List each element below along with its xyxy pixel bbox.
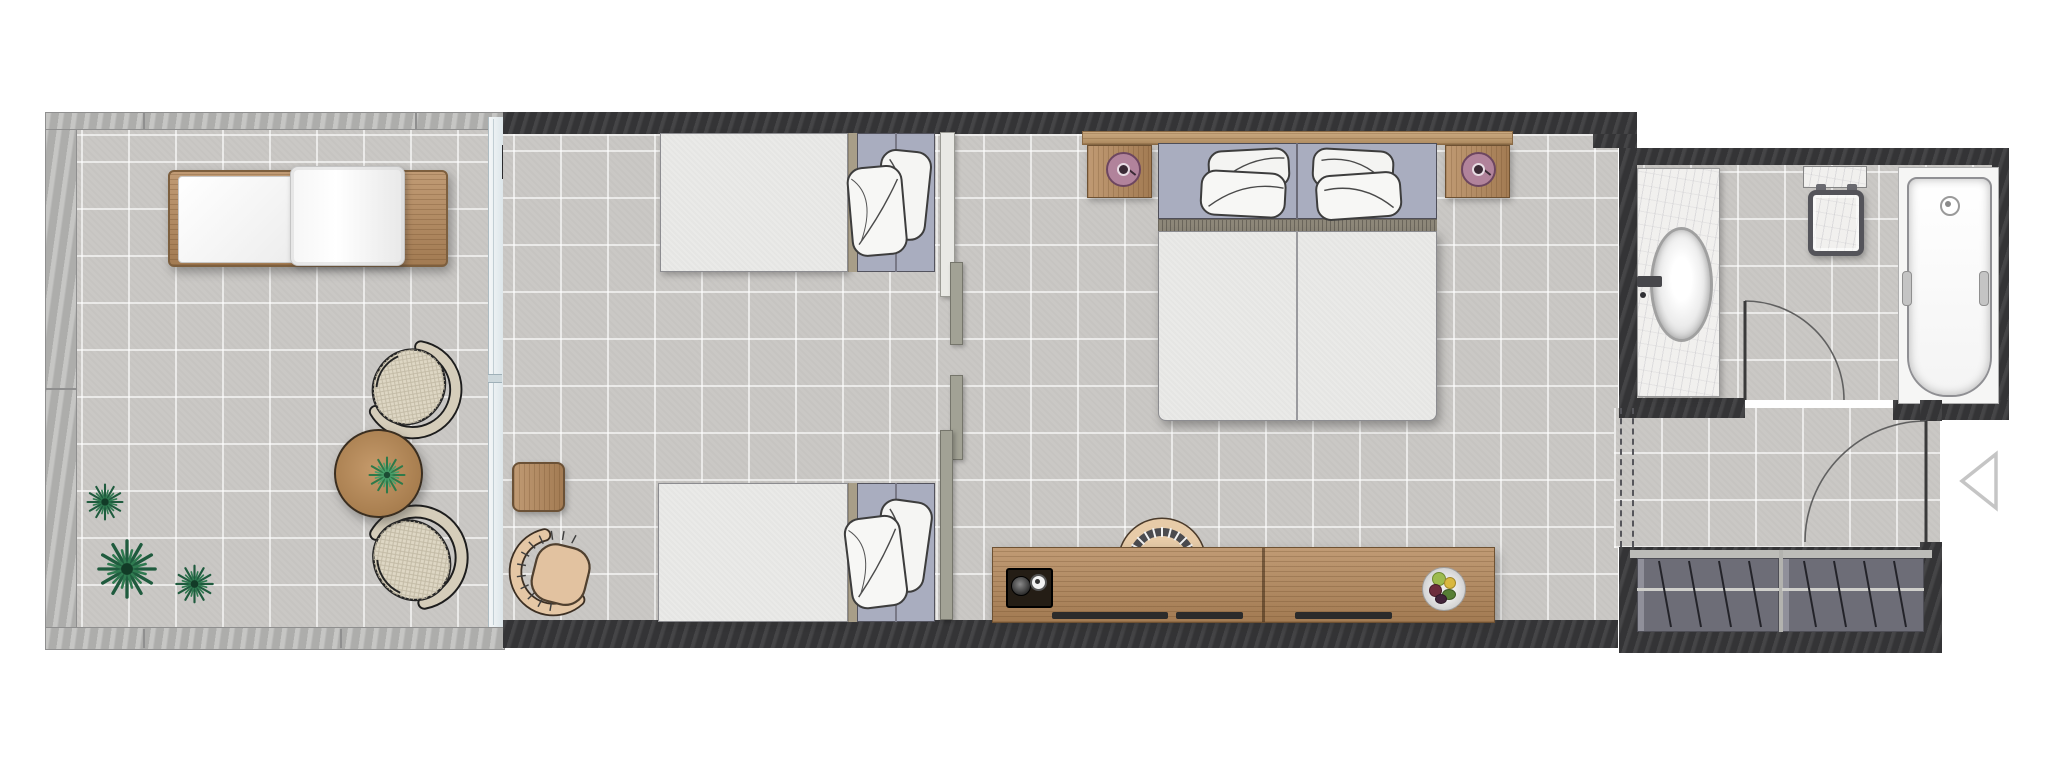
potted-plant-icon (90, 530, 164, 608)
drawer-handle (1176, 612, 1243, 619)
potted-plant-icon (82, 479, 128, 525)
drain-dot (1640, 292, 1646, 298)
glass-mullion (493, 119, 494, 625)
bath-top-wall (1637, 148, 2007, 165)
wall-joint (143, 629, 145, 648)
fruit (1435, 594, 1447, 604)
glass-sliding-wall (488, 117, 504, 627)
floor-plan (0, 0, 2048, 767)
entry-marker-icon (1958, 450, 2000, 512)
opening-dashed-line (1632, 408, 1634, 547)
potted-plant-icon (170, 560, 219, 608)
lamp-center (1472, 163, 1485, 176)
hangers-icon (1645, 559, 1775, 631)
entry-door (1798, 414, 1934, 550)
bottom-wall (503, 620, 1618, 648)
wall-joint (46, 388, 76, 390)
single-bed-mattress (660, 133, 848, 272)
tub-grip (1902, 271, 1912, 306)
pillows-icon (842, 143, 938, 261)
cup-dot (1035, 579, 1040, 584)
toilet-tank (1803, 166, 1867, 188)
terrace-wall-top (45, 112, 505, 130)
wall-joint (143, 113, 145, 129)
fruit (1444, 577, 1456, 589)
kettle-icon (1011, 576, 1031, 596)
toilet-bowl (1808, 190, 1864, 256)
wall-corner (1593, 134, 1637, 148)
wall-joint (340, 629, 342, 648)
desk-seam (1262, 548, 1265, 622)
bath-bottom-wall (1619, 398, 1745, 418)
side-table (512, 462, 565, 512)
partition-panel (950, 262, 963, 345)
opening-dashed-line (1620, 408, 1622, 547)
sun-lounger-backrest (290, 166, 405, 266)
lamp-center (1117, 163, 1130, 176)
tub-grip (1979, 271, 1989, 306)
terrace-wall-left (45, 112, 77, 650)
bath-partition-wall (1619, 134, 1637, 410)
glass-divider (488, 374, 502, 383)
bathroom-door (1740, 296, 1852, 406)
faucet-icon (1637, 276, 1662, 287)
wall-joint (415, 113, 417, 129)
terrace-wall-bottom (45, 627, 505, 650)
sun-lounger-cushion (178, 176, 304, 263)
lounge-chair-icon (510, 526, 604, 616)
tub-drain-dot (1945, 201, 1951, 207)
mattress-split (1296, 231, 1298, 421)
wardrobe-side-strip (1783, 559, 1789, 631)
pillows-icon (1193, 146, 1409, 224)
table-plant-icon (364, 452, 410, 498)
single-bed-mattress (658, 483, 848, 622)
drawer-handle (1295, 612, 1392, 619)
drawer-handle (1052, 612, 1168, 619)
pillows-icon (840, 492, 938, 614)
partition-panel (940, 430, 953, 620)
hangers-icon (1790, 559, 1920, 631)
wardrobe-side-strip (1638, 559, 1644, 631)
